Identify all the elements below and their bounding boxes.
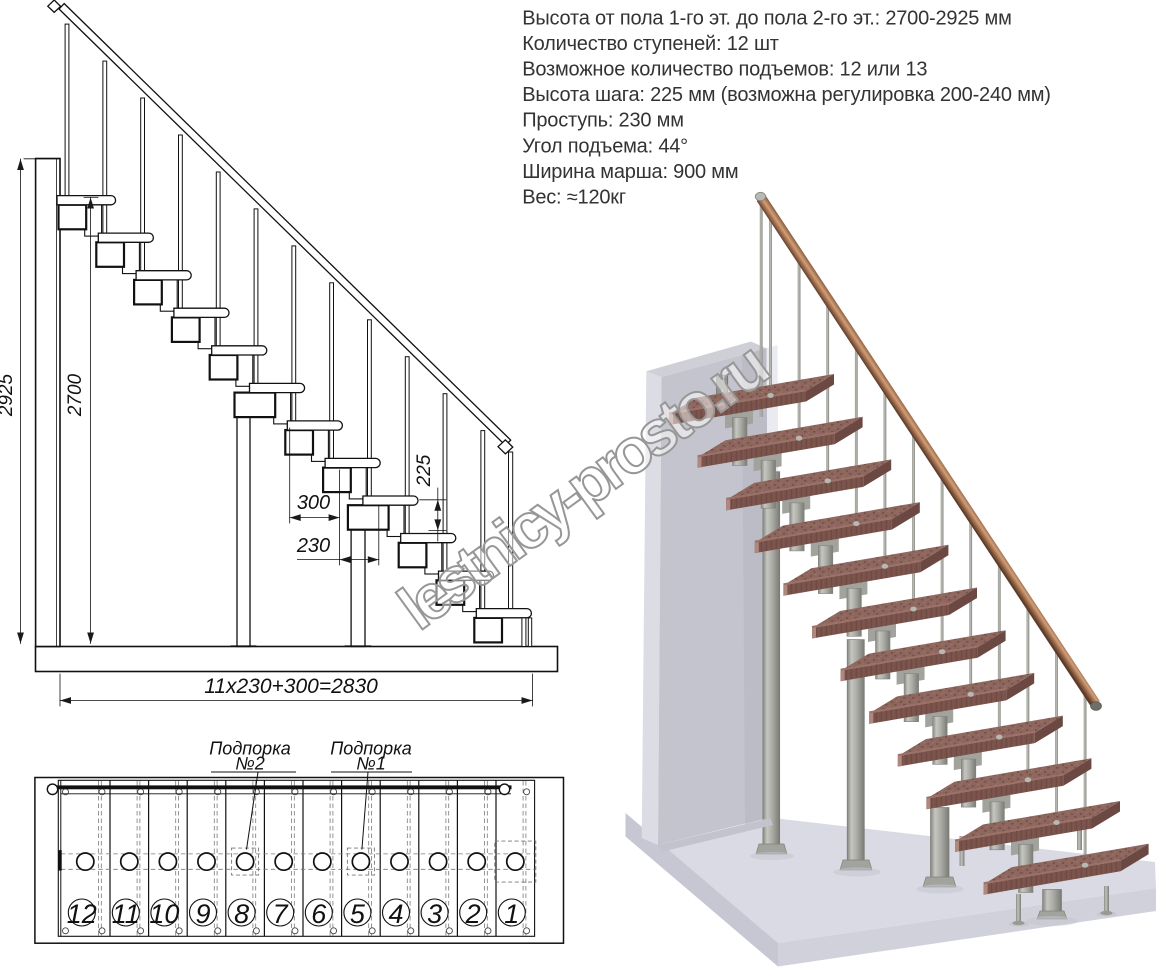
svg-text:11: 11 [112,899,140,929]
svg-text:8: 8 [234,899,249,929]
svg-text:12: 12 [67,899,97,929]
svg-text:Высота от пола 1-го эт. до пол: Высота от пола 1-го эт. до пола 2-го эт.… [522,7,1011,29]
svg-text:Угол подъема: 44°: Угол подъема: 44° [522,135,688,157]
svg-text:7: 7 [273,899,289,929]
svg-text:№1: №1 [356,754,386,774]
svg-text:1: 1 [504,899,519,929]
svg-text:230: 230 [296,535,330,557]
svg-text:2700: 2700 [65,373,86,417]
svg-text:2: 2 [465,899,481,929]
svg-text:№2: №2 [235,754,265,774]
svg-text:2925: 2925 [0,373,17,417]
svg-text:Ширина марша: 900 мм: Ширина марша: 900 мм [522,161,738,183]
svg-text:3: 3 [427,899,442,929]
svg-text:Количество ступеней: 12 шт: Количество ступеней: 12 шт [522,33,779,55]
svg-text:Проступь: 230 мм: Проступь: 230 мм [522,110,684,132]
svg-text:9: 9 [195,899,210,929]
svg-text:6: 6 [311,899,327,929]
svg-text:11x230+300=2830: 11x230+300=2830 [204,675,378,698]
svg-text:300: 300 [297,492,330,514]
svg-text:5: 5 [350,899,366,929]
svg-text:225: 225 [414,454,435,487]
svg-text:10: 10 [149,899,179,929]
svg-text:Высота шага: 225 мм (возможна: Высота шага: 225 мм (возможна регулировк… [522,84,1051,106]
svg-text:Вес: ≈120кг: Вес: ≈120кг [522,187,626,209]
svg-text:4: 4 [388,899,403,929]
svg-text:Возможное количество подъемов:: Возможное количество подъемов: 12 или 13 [522,59,927,81]
